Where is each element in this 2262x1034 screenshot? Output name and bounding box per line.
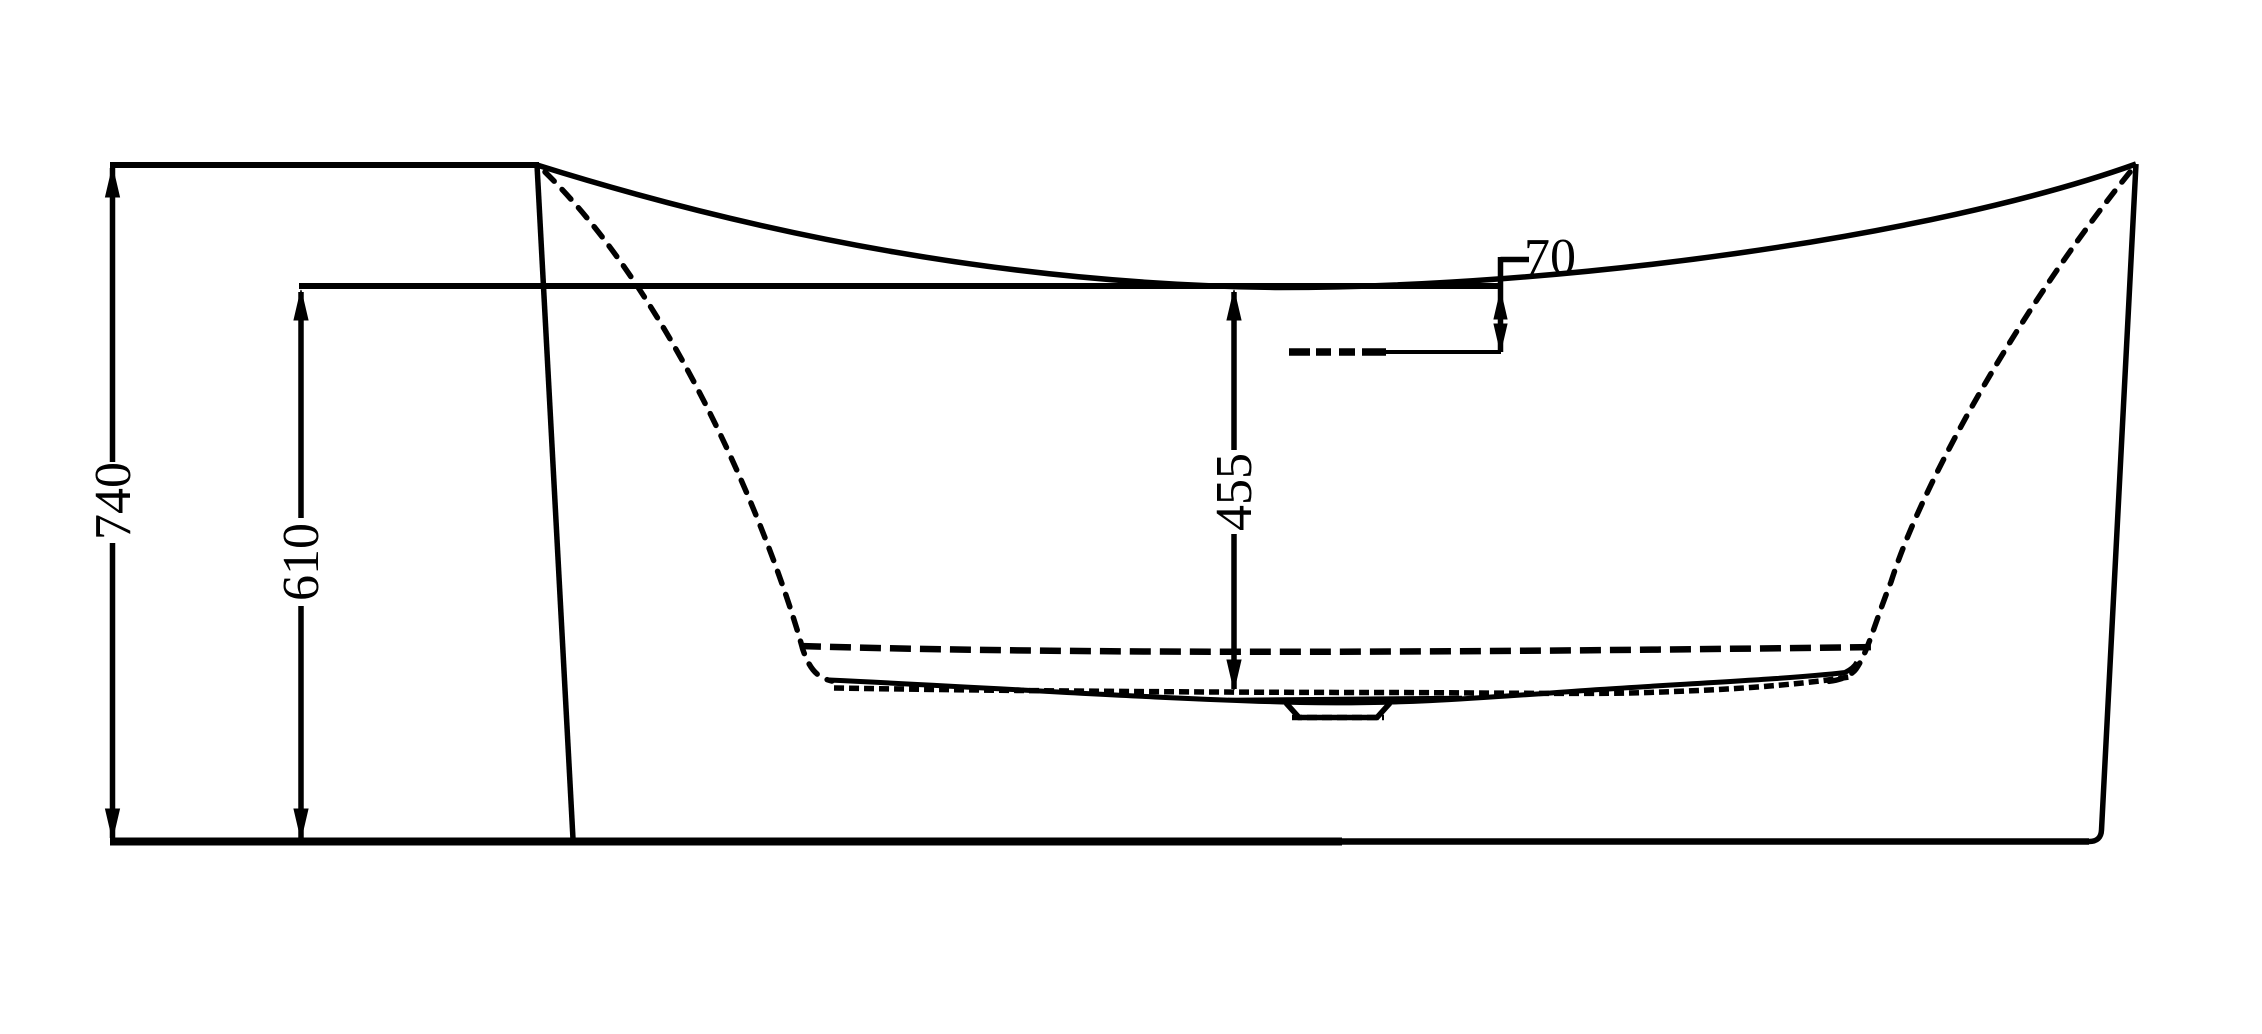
svg-text:610: 610 bbox=[273, 523, 330, 601]
svg-text:455: 455 bbox=[1206, 453, 1263, 531]
svg-text:740: 740 bbox=[85, 462, 142, 540]
svg-text:70: 70 bbox=[1524, 229, 1576, 286]
